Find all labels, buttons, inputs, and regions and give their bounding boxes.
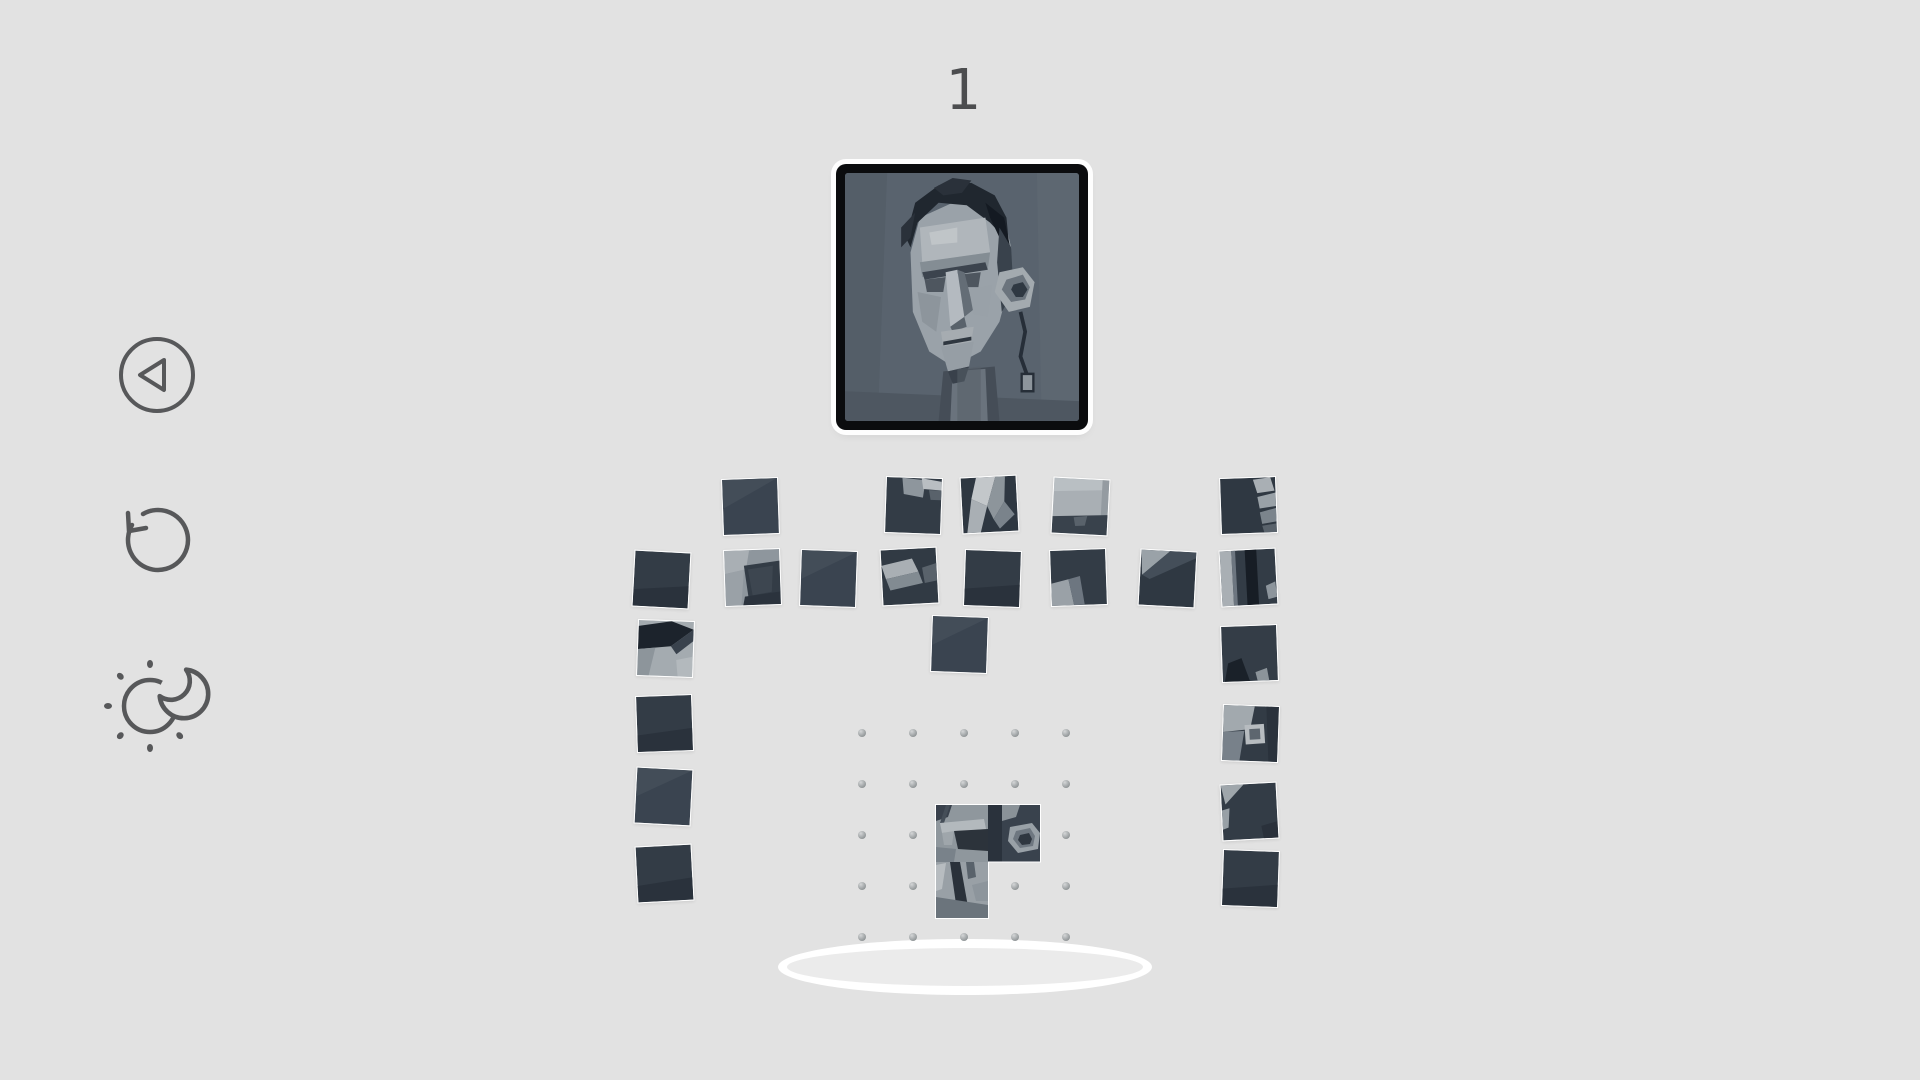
grid-dot[interactable] [1011,780,1019,788]
restart-button[interactable] [118,500,198,580]
grid-dot[interactable] [858,831,866,839]
grid-dot[interactable] [909,882,917,890]
grid-dot[interactable] [960,780,968,788]
game-stage: 1 [0,0,1920,1080]
grid-dot[interactable] [858,780,866,788]
puzzle-piece-plain_a[interactable] [721,477,780,536]
puzzle-piece-ear_box[interactable] [1221,704,1280,763]
theme-toggle-button[interactable] [104,656,214,756]
puzzle-piece-plain_b[interactable] [963,549,1022,608]
puzzle-piece-spike_bl[interactable] [1220,624,1279,683]
puzzle-piece-bands[interactable] [1219,548,1279,608]
placed-piece-art [936,805,1040,918]
grid-dot[interactable] [1062,933,1070,941]
grid-dot[interactable] [858,729,866,737]
reference-image [845,173,1079,421]
puzzle-piece-plain_b[interactable] [632,550,692,610]
grid-dot[interactable] [909,831,917,839]
grid-dot[interactable] [1062,831,1070,839]
puzzle-piece-edge_light[interactable] [1219,476,1278,535]
grid-dot[interactable] [909,729,917,737]
grid-dot[interactable] [909,933,917,941]
puzzle-piece-plain_a[interactable] [634,767,694,827]
puzzle-piece-plain_b[interactable] [1221,849,1280,908]
puzzle-piece-plain_b[interactable] [635,844,695,904]
day-night-icon [104,656,214,756]
puzzle-piece-plain_a[interactable] [799,549,858,608]
grid-dot[interactable] [1011,933,1019,941]
restart-icon [118,500,198,580]
puzzle-piece-hair_diag[interactable] [636,619,695,678]
grid-dot[interactable] [1062,780,1070,788]
grid-dot[interactable] [1062,729,1070,737]
back-icon [117,335,197,415]
puzzle-piece-wedge2[interactable] [880,547,940,607]
puzzle-piece-plain_b[interactable] [635,694,694,753]
grid-dot[interactable] [960,729,968,737]
puzzle-piece-wedge[interactable] [960,475,1020,535]
grid-dot[interactable] [1062,882,1070,890]
grid-dot[interactable] [909,780,917,788]
grid-dot[interactable] [858,933,866,941]
grid-dot[interactable] [960,933,968,941]
puzzle-piece-plain_a[interactable] [930,615,989,674]
puzzle-piece-light_plane[interactable] [1051,477,1111,537]
back-button[interactable] [117,335,197,415]
platform-ellipse [778,939,1152,995]
placed-piece-group[interactable] [936,805,1040,918]
level-counter: 1 [902,58,1026,123]
puzzle-piece-block_top[interactable] [884,476,943,535]
puzzle-piece-panels[interactable] [723,548,782,607]
grid-dot[interactable] [858,882,866,890]
reference-card [836,164,1088,430]
puzzle-piece-diag_tl[interactable] [1138,549,1198,609]
grid-dot[interactable] [1011,729,1019,737]
puzzle-piece-frag_bl[interactable] [1049,548,1108,607]
puzzle-piece-diag_tl2[interactable] [1220,782,1280,842]
